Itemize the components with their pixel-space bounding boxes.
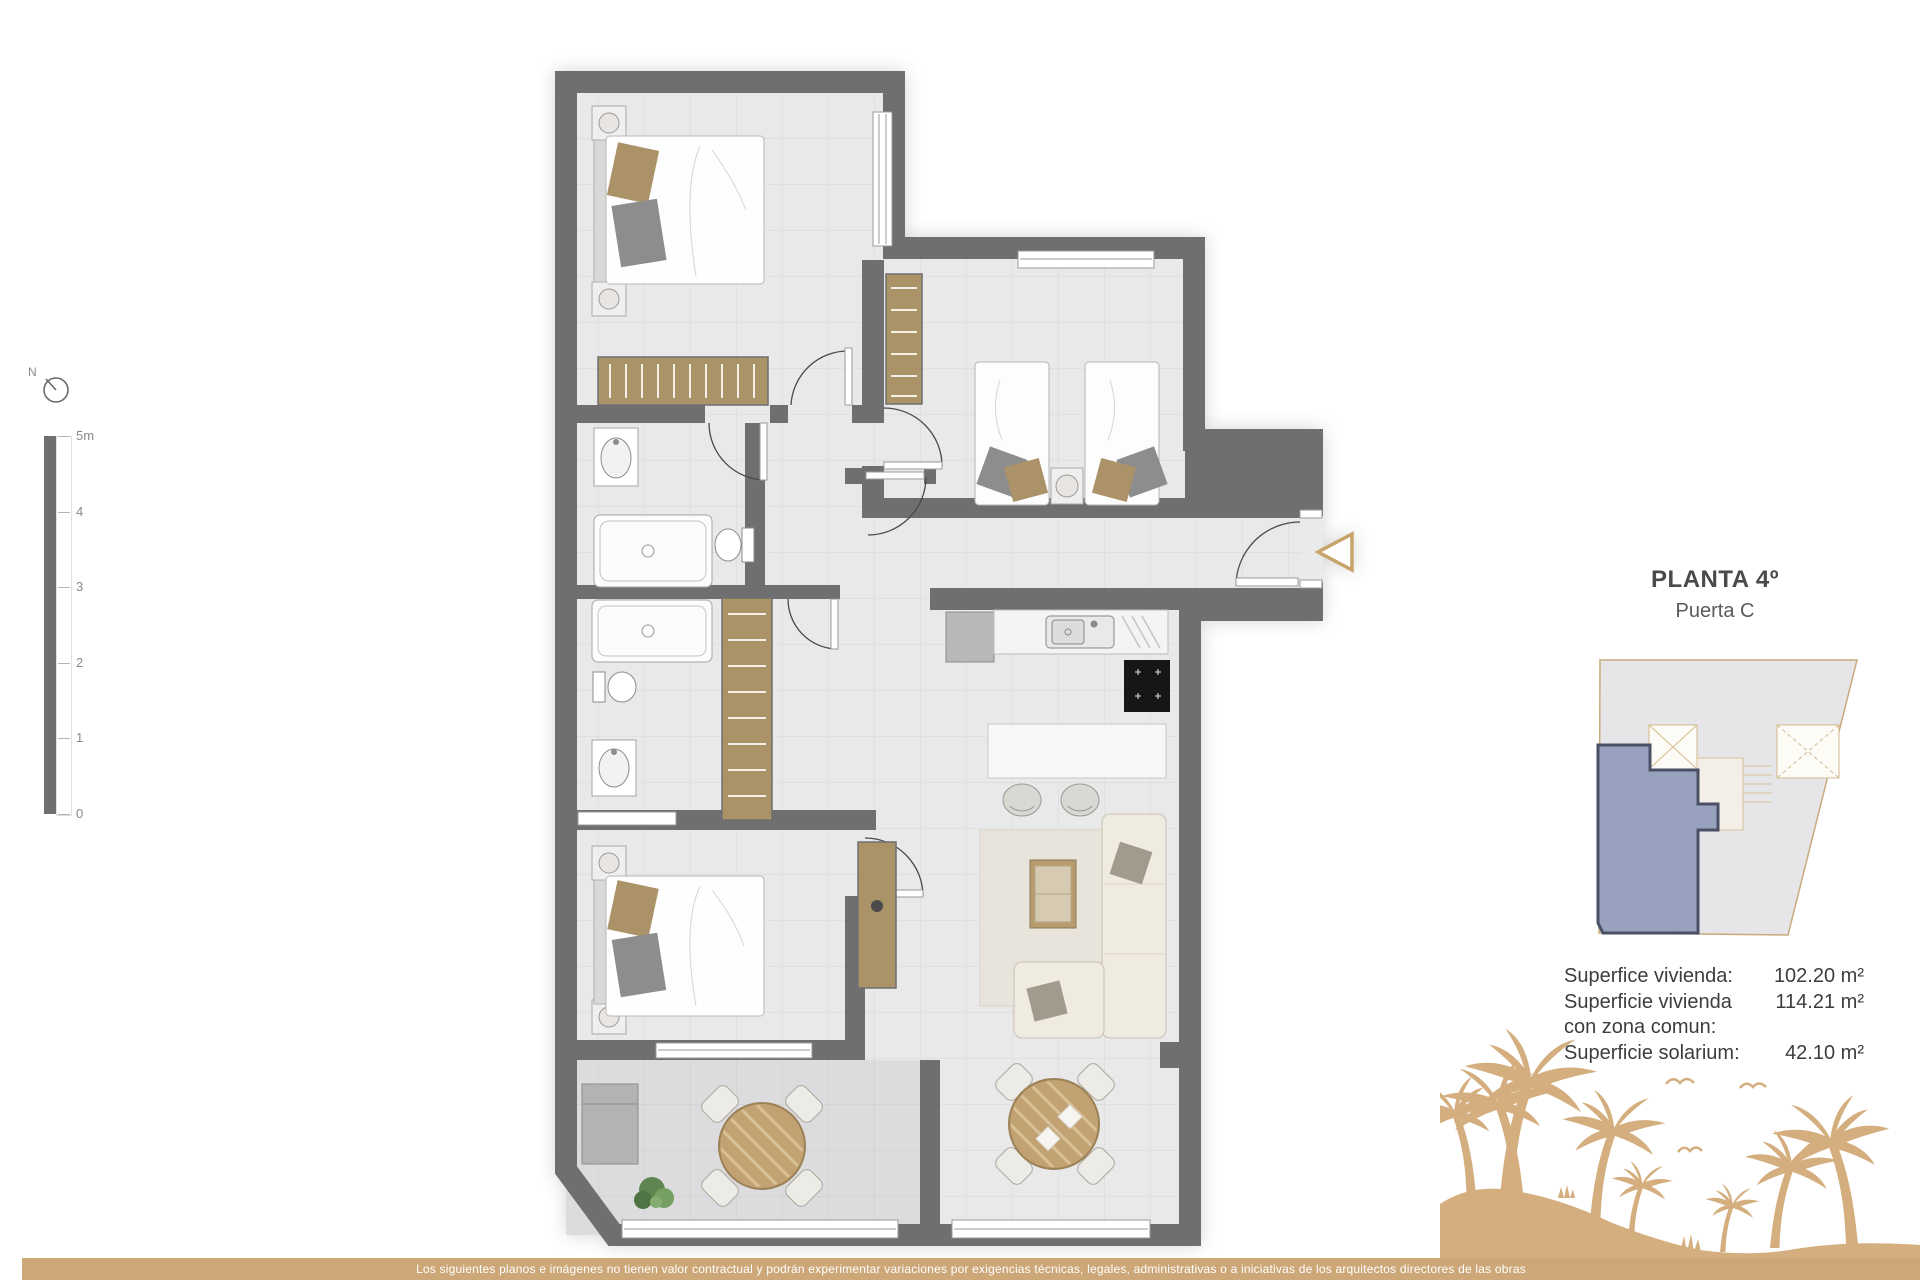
beach-grass <box>1680 1234 1701 1252</box>
toilet <box>742 528 754 562</box>
beach-grass <box>1558 1185 1575 1198</box>
bathtub <box>594 515 712 587</box>
storage-unit <box>582 1084 638 1164</box>
terrace-table <box>719 1103 805 1189</box>
page-title: PLANTA 4º <box>1565 566 1865 594</box>
bedroom-1-furniture <box>592 106 768 405</box>
scale-tick <box>58 738 70 739</box>
scale-bar: 5m 4 3 2 1 0 <box>40 430 130 830</box>
footer-disclaimer-bar: Los siguientes planos e imágenes no tien… <box>22 1258 1920 1280</box>
palm-trees-graphic <box>1440 1026 1920 1258</box>
plan-title-block: PLANTA 4º Puerta C <box>1565 566 1865 623</box>
headboard <box>594 140 606 282</box>
kitchen-island <box>988 724 1166 778</box>
page-subtitle: Puerta C <box>1565 600 1865 623</box>
scale-tick <box>58 512 70 513</box>
light-well <box>1777 725 1839 778</box>
dining-area-furniture <box>990 1061 1117 1188</box>
headboard <box>594 880 606 1004</box>
scale-tick <box>58 814 70 815</box>
entrance-arrow-icon <box>1318 534 1352 570</box>
scale-label: 1 <box>76 730 83 745</box>
pillow <box>612 933 667 997</box>
birds-icon <box>1666 1079 1766 1152</box>
scale-label: 4 <box>76 504 83 519</box>
scale-bar-track <box>56 436 72 816</box>
surface-label: Superfice vivienda: <box>1564 964 1762 989</box>
disclaimer-text: Los siguientes planos e imágenes no tien… <box>416 1262 1526 1276</box>
scale-tick <box>58 663 70 664</box>
pillow <box>611 199 666 267</box>
lamp-icon <box>599 853 619 873</box>
surface-row: Superfice vivienda: 102.20 m² <box>1564 964 1864 989</box>
scale-tick <box>58 587 70 588</box>
entrance-opening <box>1301 516 1323 582</box>
page: N 5m 4 3 2 1 0 <box>0 0 1920 1280</box>
dining-table <box>1009 1079 1099 1169</box>
scale-label: 2 <box>76 655 83 670</box>
scale-tick <box>58 436 70 437</box>
wardrobe <box>598 357 768 405</box>
fridge <box>946 612 994 662</box>
shower-tub <box>592 600 712 662</box>
console-table <box>858 842 896 988</box>
scale-bar-rule <box>44 436 56 814</box>
scale-label: 0 <box>76 806 83 821</box>
scale-label: 5m <box>76 428 94 443</box>
scale-label: 3 <box>76 579 83 594</box>
lamp-icon <box>599 113 619 133</box>
north-compass: N <box>24 358 84 418</box>
wardrobe <box>886 274 922 404</box>
floor-plan <box>540 60 1380 1260</box>
key-plan <box>1588 650 1888 950</box>
hall-closet <box>722 598 772 820</box>
toilet <box>593 672 605 702</box>
cooktop <box>1124 660 1170 712</box>
lamp-icon <box>1056 475 1078 497</box>
north-label: N <box>28 365 37 379</box>
lamp-icon <box>599 289 619 309</box>
console-knob <box>871 900 883 912</box>
surface-value: 102.20 m² <box>1762 964 1864 989</box>
